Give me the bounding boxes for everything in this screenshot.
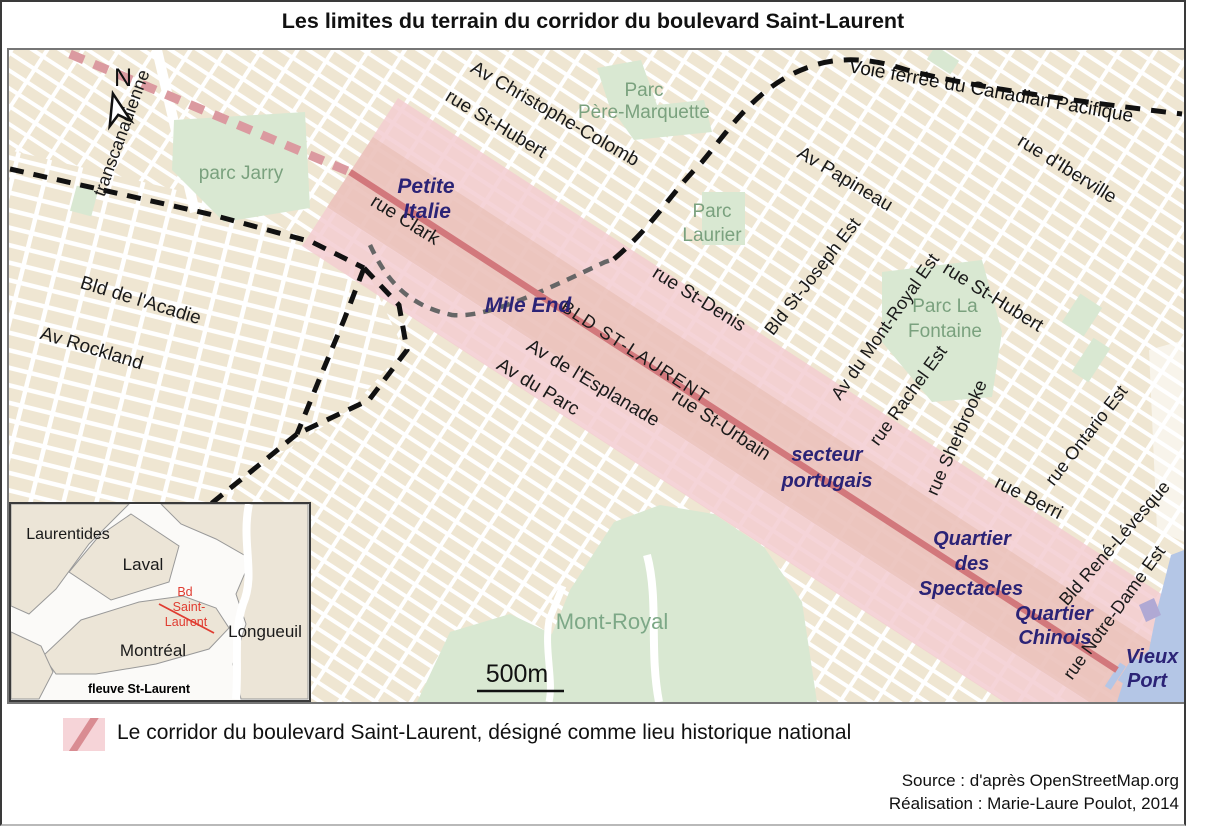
district-label-chinois-1: Quartier [1015, 603, 1094, 625]
page-title: Les limites du terrain du corridor du bo… [0, 9, 1186, 34]
inset-locator-map: Laurentides Laval Bd Saint- Laurent Long… [9, 502, 311, 702]
district-label-secteur-2: portugais [780, 470, 872, 492]
park-label-jarry: parc Jarry [199, 163, 284, 184]
park-label-pere-marquette-2: Père-Marquette [578, 102, 710, 123]
park-label-laurier-2: Laurier [682, 225, 742, 246]
inset-label-laval: Laval [123, 555, 164, 574]
district-label-petite-italie-2: Italie [403, 200, 451, 223]
legend-text: Le corridor du boulevard Saint-Laurent, … [117, 721, 851, 745]
inset-label-fleuve: fleuve St-Laurent [88, 682, 191, 696]
inset-label-montreal: Montréal [120, 641, 186, 660]
district-label-chinois-2: Chinois [1018, 627, 1091, 649]
inset-label-bd-1: Bd [177, 585, 192, 599]
main-map: transcanadienne Bld de l'Acadie Av Rockl… [7, 48, 1186, 704]
scale-label: 500m [486, 660, 549, 688]
district-label-spectacles-3: Spectacles [919, 578, 1024, 600]
district-label-spectacles-2: des [955, 553, 989, 575]
inset-label-bd-3: Laurent [165, 615, 208, 629]
credit-source: Source : d'après OpenStreetMap.org [889, 770, 1179, 793]
southwest-land [11, 632, 53, 699]
park-label-la-fontaine-2: Fontaine [908, 321, 982, 342]
legend-corridor-swatch [63, 718, 105, 751]
park-label-laurier-1: Parc [692, 201, 731, 222]
park-label-la-fontaine-1: Parc La [912, 296, 978, 317]
inset-label-laurentides: Laurentides [26, 526, 110, 543]
district-label-spectacles-1: Quartier [933, 528, 1012, 550]
district-label-secteur-1: secteur [791, 444, 863, 466]
inset-label-bd-2: Saint- [173, 600, 206, 614]
district-label-vieux-port-2: Port [1127, 670, 1168, 692]
credit-realisation: Réalisation : Marie-Laure Poulot, 2014 [889, 793, 1179, 816]
park-label-mont-royal: Mont-Royal [556, 609, 668, 634]
inset-label-longueuil: Longueuil [228, 622, 302, 641]
district-label-mile-end: Mile End [485, 294, 573, 317]
park-label-pere-marquette-1: Parc [624, 80, 663, 101]
legend-boulevard-bar [67, 718, 100, 751]
figure-page: Les limites du terrain du corridor du bo… [0, 0, 1205, 826]
credits: Source : d'après OpenStreetMap.org Réali… [889, 770, 1179, 815]
district-label-petite-italie-1: Petite [397, 175, 455, 198]
district-label-vieux-port-1: Vieux [1126, 646, 1179, 668]
north-label: N [114, 64, 132, 92]
